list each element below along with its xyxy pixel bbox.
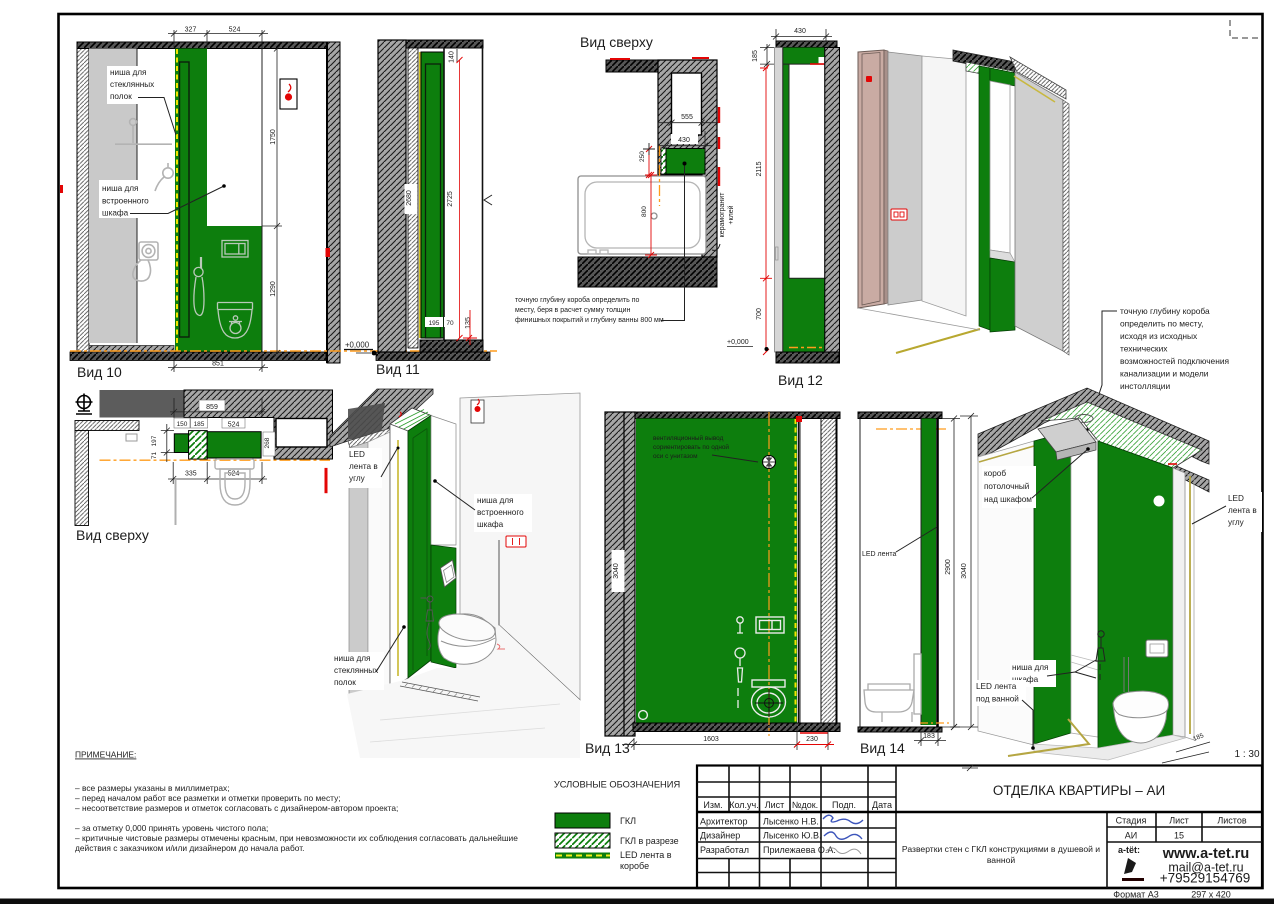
svg-text:2115: 2115 bbox=[756, 161, 763, 176]
svg-text:a-tёt:: a-tёt: bbox=[1118, 845, 1140, 855]
svg-text:327: 327 bbox=[185, 27, 197, 34]
svg-text:524: 524 bbox=[229, 27, 241, 34]
svg-text:полок: полок bbox=[334, 678, 356, 687]
svg-text:524: 524 bbox=[228, 421, 240, 428]
svg-text:185: 185 bbox=[194, 421, 205, 428]
svg-text:15: 15 bbox=[1174, 831, 1184, 841]
svg-text:Изм.: Изм. bbox=[703, 800, 722, 810]
svg-text:268: 268 bbox=[264, 437, 271, 448]
svg-text:Дата: Дата bbox=[872, 800, 892, 810]
svg-text:короб: короб bbox=[984, 469, 1006, 478]
svg-text:над шкафом: над шкафом bbox=[984, 495, 1032, 504]
svg-text:ванной: ванной bbox=[987, 855, 1016, 865]
svg-text:Стадия: Стадия bbox=[1116, 816, 1147, 826]
svg-text:1750: 1750 bbox=[270, 129, 277, 145]
svg-text:Дизайнер: Дизайнер bbox=[700, 831, 740, 841]
svg-text:ниша для: ниша для bbox=[334, 654, 370, 663]
svg-text:859: 859 bbox=[206, 404, 218, 411]
svg-text:71: 71 bbox=[151, 452, 158, 460]
svg-text:800: 800 bbox=[641, 206, 648, 217]
svg-text:коробе: коробе bbox=[620, 861, 649, 871]
svg-text:135: 135 bbox=[465, 317, 472, 329]
svg-text:оси с унитазом: оси с унитазом bbox=[653, 453, 698, 460]
svg-text:керамогранит: керамогранит bbox=[719, 192, 726, 238]
svg-text:1603: 1603 bbox=[703, 736, 719, 743]
svg-text:3040: 3040 bbox=[961, 563, 968, 579]
svg-text:ОТДЕЛКА КВАРТИРЫ – АИ: ОТДЕЛКА КВАРТИРЫ – АИ bbox=[993, 783, 1165, 798]
svg-text:ниша для: ниша для bbox=[1012, 663, 1048, 672]
svg-text:1290: 1290 bbox=[270, 281, 277, 297]
svg-text:+0,000: +0,000 bbox=[727, 339, 749, 346]
svg-text:150: 150 bbox=[177, 421, 188, 428]
svg-text:LED лента: LED лента bbox=[976, 682, 1017, 691]
svg-text:LED лента в: LED лента в bbox=[620, 850, 672, 860]
svg-text:+79529154769: +79529154769 bbox=[1160, 871, 1250, 886]
svg-text:– перед началом работ все разм: – перед началом работ все разметки и отм… bbox=[75, 793, 341, 803]
svg-text:ГКЛ в разрезе: ГКЛ в разрезе bbox=[620, 836, 679, 846]
svg-text:– критичные чистовые размеры о: – критичные чистовые размеры отмечены кр… bbox=[75, 833, 518, 843]
svg-text:точную глубину короба: точную глубину короба bbox=[1120, 306, 1210, 316]
svg-text:Вид сверху: Вид сверху bbox=[76, 527, 149, 543]
svg-text:700: 700 bbox=[756, 308, 763, 320]
svg-text:месту, беря в расчет сумму тол: месту, беря в расчет сумму толщин bbox=[515, 306, 631, 314]
svg-text:действия с заказчиком и/или ди: действия с заказчиком и/или дизайнером д… bbox=[75, 843, 304, 853]
svg-text:185: 185 bbox=[752, 50, 759, 62]
svg-text:Вид 10: Вид 10 bbox=[77, 364, 122, 380]
svg-text:ПРИМЕЧАНИЕ:: ПРИМЕЧАНИЕ: bbox=[75, 750, 136, 760]
svg-text:2900: 2900 bbox=[945, 559, 952, 575]
svg-text:2680: 2680 bbox=[406, 190, 413, 206]
svg-text:Листов: Листов bbox=[1217, 816, 1246, 826]
svg-text:точную глубину короба определи: точную глубину короба определить по bbox=[515, 296, 640, 304]
svg-text:Развертки стен с ГКЛ конструкц: Развертки стен с ГКЛ конструкциями в душ… bbox=[902, 844, 1100, 854]
svg-text:Подп.: Подп. bbox=[832, 800, 856, 810]
svg-text:LED: LED bbox=[1228, 494, 1244, 503]
svg-text:Архитектор: Архитектор bbox=[700, 817, 748, 827]
svg-text:+клей: +клей bbox=[727, 205, 735, 224]
svg-text:3040: 3040 bbox=[613, 563, 620, 579]
svg-text:524: 524 bbox=[228, 471, 240, 478]
svg-text:LED лента: LED лента bbox=[862, 551, 897, 558]
svg-text:1 : 30: 1 : 30 bbox=[1234, 749, 1259, 760]
svg-text:исходя из исходных: исходя из исходных bbox=[1120, 331, 1198, 341]
svg-text:297 x 420: 297 x 420 bbox=[1191, 890, 1231, 900]
svg-text:2725: 2725 bbox=[447, 191, 454, 207]
svg-text:70: 70 bbox=[446, 320, 454, 327]
svg-text:183: 183 bbox=[923, 733, 935, 740]
svg-text:Кол.уч.: Кол.уч. bbox=[729, 800, 759, 810]
svg-text:Вид сверху: Вид сверху bbox=[580, 34, 653, 50]
svg-text:195: 195 bbox=[429, 320, 440, 327]
svg-text:Вид 11: Вид 11 bbox=[376, 361, 420, 377]
svg-text:250: 250 bbox=[639, 151, 646, 162]
svg-text:вентиляционный вывод: вентиляционный вывод bbox=[653, 434, 724, 442]
svg-text:Лист: Лист bbox=[1169, 816, 1189, 826]
svg-text:углу: углу bbox=[1228, 518, 1245, 527]
svg-text:ГКЛ: ГКЛ bbox=[620, 816, 636, 826]
svg-text:встроенного: встроенного bbox=[102, 197, 149, 206]
svg-text:140: 140 bbox=[449, 51, 456, 63]
svg-text:Вид 12: Вид 12 bbox=[778, 372, 823, 388]
svg-text:Прилежаева О.А.: Прилежаева О.А. bbox=[763, 845, 836, 855]
svg-text:под ванной: под ванной bbox=[976, 695, 1019, 704]
svg-text:– за отметку 0,000 принять уро: – за отметку 0,000 принять уровень чисто… bbox=[75, 823, 268, 833]
svg-text:№док.: №док. bbox=[792, 800, 818, 810]
svg-text:– все размеры указаны в миллим: – все размеры указаны в миллиметрах; bbox=[75, 783, 230, 793]
svg-text:ниша для: ниша для bbox=[110, 68, 146, 77]
svg-text:стеклянных: стеклянных bbox=[110, 80, 154, 89]
svg-text:стеклянных: стеклянных bbox=[334, 666, 378, 675]
svg-text:канализации и модели: канализации и модели bbox=[1120, 369, 1209, 379]
svg-text:возможностей подключения: возможностей подключения bbox=[1120, 356, 1229, 366]
svg-text:335: 335 bbox=[185, 471, 197, 478]
svg-text:инстолляции: инстолляции bbox=[1120, 381, 1170, 391]
svg-text:197: 197 bbox=[151, 435, 158, 446]
svg-text:ниша для: ниша для bbox=[477, 496, 513, 505]
svg-text:лента в: лента в bbox=[349, 462, 378, 471]
svg-text:потолочный: потолочный bbox=[984, 482, 1029, 491]
svg-text:УСЛОВНЫЕ ОБОЗНАЧЕНИЯ: УСЛОВНЫЕ ОБОЗНАЧЕНИЯ bbox=[554, 780, 680, 790]
svg-text:встроенного: встроенного bbox=[477, 508, 524, 517]
svg-text:шкафа: шкафа bbox=[477, 520, 504, 529]
svg-text:430: 430 bbox=[794, 28, 806, 35]
svg-text:Формат А3: Формат А3 bbox=[1113, 890, 1158, 900]
svg-text:АИ: АИ bbox=[1125, 831, 1137, 841]
svg-text:финишных покрытий и глубину ва: финишных покрытий и глубину ванны 800 мм bbox=[515, 316, 664, 324]
svg-text:– несоответствие размеров и от: – несоответствие размеров и отметок согл… bbox=[75, 803, 398, 813]
svg-text:230: 230 bbox=[806, 736, 818, 743]
svg-text:углу: углу bbox=[349, 474, 366, 483]
svg-text:430: 430 bbox=[678, 137, 690, 144]
svg-text:лента в: лента в bbox=[1228, 506, 1257, 515]
svg-text:Лысенко Ю.В.: Лысенко Ю.В. bbox=[763, 831, 822, 841]
svg-text:+0,000: +0,000 bbox=[345, 341, 370, 350]
svg-text:Лысенко Н.В.: Лысенко Н.В. bbox=[763, 817, 819, 827]
svg-text:LED: LED bbox=[349, 450, 365, 459]
svg-text:Вид 14: Вид 14 bbox=[860, 740, 905, 756]
svg-text:851: 851 bbox=[212, 361, 224, 368]
svg-text:определить по месту,: определить по месту, bbox=[1120, 319, 1203, 329]
svg-text:шкафа: шкафа bbox=[102, 209, 129, 218]
svg-text:полок: полок bbox=[110, 92, 132, 101]
svg-text:технических: технических bbox=[1120, 344, 1168, 354]
svg-text:сориентировать по одной: сориентировать по одной bbox=[653, 443, 729, 451]
svg-text:Лист: Лист bbox=[765, 800, 785, 810]
svg-text:Разработал: Разработал bbox=[700, 845, 749, 855]
svg-text:Вид 13: Вид 13 bbox=[585, 740, 630, 756]
svg-text:ниша для: ниша для bbox=[102, 184, 138, 193]
svg-text:555: 555 bbox=[681, 114, 693, 121]
